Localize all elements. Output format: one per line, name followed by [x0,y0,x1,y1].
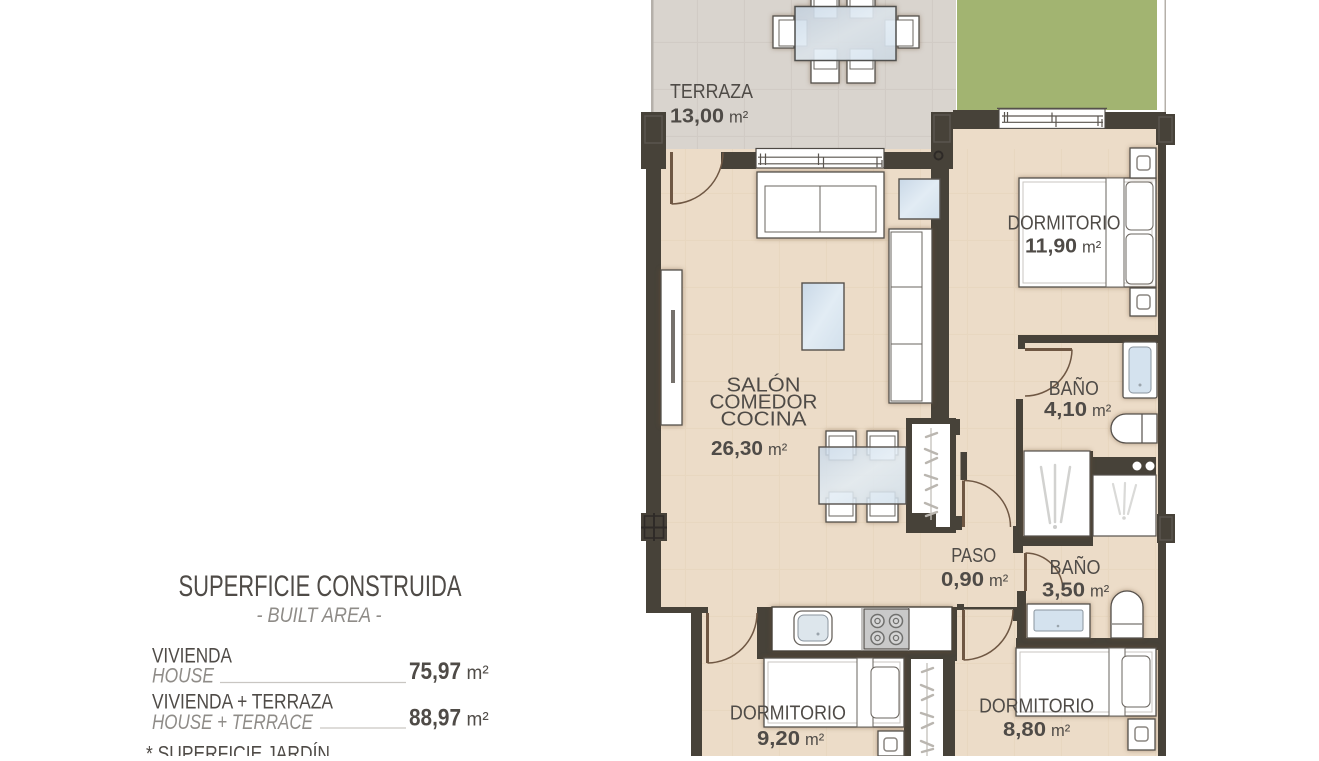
svg-text:DORMITORIO: DORMITORIO [979,696,1094,718]
svg-text:BAÑO: BAÑO [1050,555,1101,579]
svg-text:HOUSE + TERRACE: HOUSE + TERRACE [152,710,314,734]
svg-text:13,00m²: 13,00m² [670,105,749,128]
svg-text:PASO: PASO [951,545,996,567]
svg-text:- BUILT AREA -: - BUILT AREA - [257,604,382,627]
svg-text:3,50m²: 3,50m² [1042,579,1110,602]
svg-text:DORMITORIO: DORMITORIO [730,702,846,724]
svg-text:9,20m²: 9,20m² [757,727,825,750]
svg-text:0,90m²: 0,90m² [941,568,1009,591]
svg-text:4,10m²: 4,10m² [1044,398,1112,421]
svg-text:88,97m²: 88,97m² [409,705,489,732]
svg-text:26,30m²: 26,30m² [711,437,788,460]
svg-text:* SUPERFICIE JARDÍN: * SUPERFICIE JARDÍN [146,741,330,757]
svg-text:11,90m²: 11,90m² [1025,235,1102,258]
svg-text:HOUSE: HOUSE [152,664,215,688]
svg-text:8,80m²: 8,80m² [1003,718,1071,741]
svg-text:SUPERFICIE CONSTRUIDA: SUPERFICIE CONSTRUIDA [179,570,462,603]
svg-text:COCINA: COCINA [721,409,808,431]
svg-text:TERRAZA: TERRAZA [670,81,754,103]
svg-text:DORMITORIO: DORMITORIO [1008,212,1121,234]
svg-text:75,97m²: 75,97m² [409,658,489,685]
svg-text:BAÑO: BAÑO [1049,376,1099,400]
